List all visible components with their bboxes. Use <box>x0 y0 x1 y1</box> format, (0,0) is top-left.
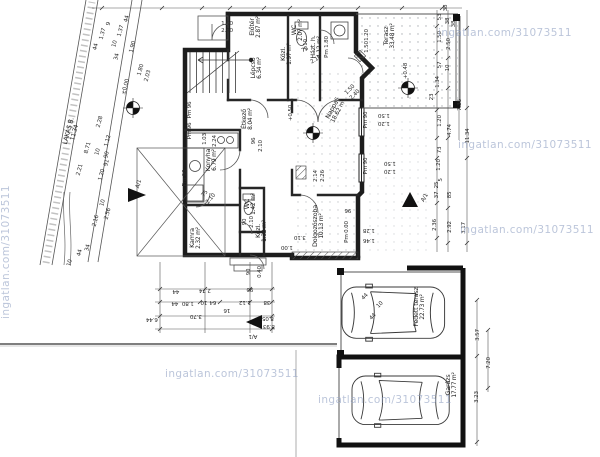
garage-structure <box>337 268 464 445</box>
stairs-icon <box>187 51 253 93</box>
ground-line <box>0 344 337 457</box>
floorplan-canvas: Előtér2.87 m²WC2.07 m²Közl.1.97 m²Házt. … <box>0 0 600 457</box>
void-x <box>137 148 225 256</box>
boundary-lines <box>40 0 142 265</box>
car-icon-garage <box>352 373 449 427</box>
car-icon-terrace <box>342 284 445 341</box>
floorplan-drawing <box>0 0 600 457</box>
